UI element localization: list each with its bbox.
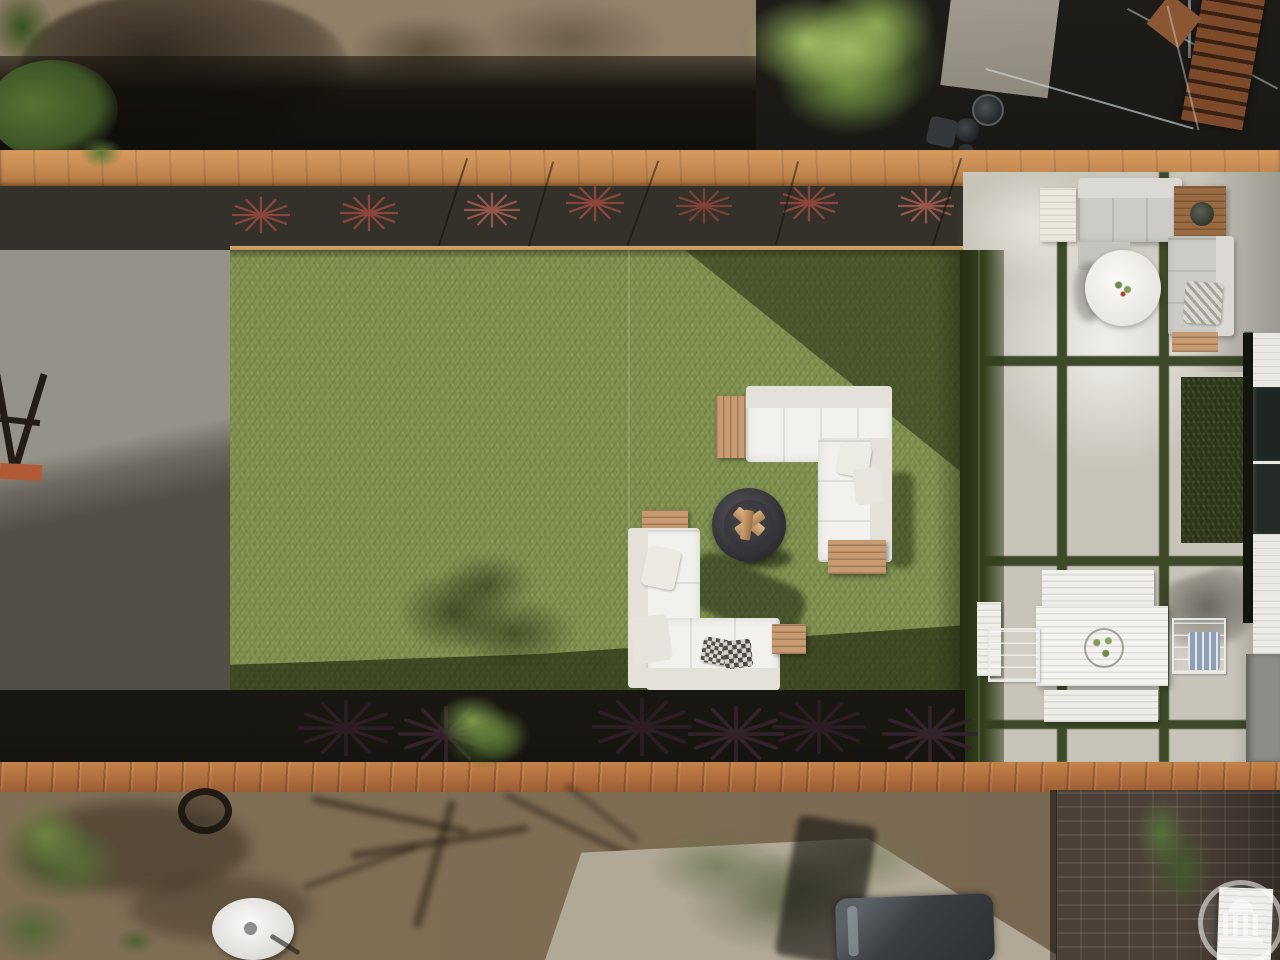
shadowed-spiky-plant xyxy=(298,700,394,756)
dish-feed-arm xyxy=(244,922,257,935)
shadowed-spiky-plant xyxy=(688,706,784,762)
side-fence-shadow-strip xyxy=(960,250,1004,762)
shadowed-spiky-plant xyxy=(772,700,866,754)
round-white-fire-table xyxy=(1085,250,1161,326)
watermark-crest-base xyxy=(1219,938,1263,943)
shadowed-spiky-plant xyxy=(592,698,692,756)
teak-side-table xyxy=(828,540,886,574)
dining-bench-bottom xyxy=(1044,690,1158,722)
orange-base-strip xyxy=(0,463,42,481)
dark-window xyxy=(1253,387,1280,461)
tire-ring xyxy=(178,788,232,834)
white-slat-panel xyxy=(1253,596,1280,654)
back-cushions xyxy=(628,528,648,688)
throw-pillow xyxy=(629,614,673,665)
watermark-crest-bars xyxy=(1223,914,1259,936)
red-cordyline-plant xyxy=(566,184,624,222)
round-planter-pot xyxy=(972,94,1004,126)
fence-greenery-tuft xyxy=(80,138,122,168)
small-tree-canopy xyxy=(424,684,544,776)
back-cushions xyxy=(1078,178,1182,198)
striped-chair-cushion xyxy=(1188,632,1220,670)
back-cushions xyxy=(746,386,892,408)
green-bush-small xyxy=(0,900,74,960)
watermark-logo: S xyxy=(1198,872,1280,960)
fire-pit-bowl xyxy=(712,488,786,562)
leaf-tuft xyxy=(116,928,156,954)
fire-table-center-bowl xyxy=(1108,273,1138,303)
gray-sectional-top xyxy=(1078,178,1182,242)
ladder-leg xyxy=(0,374,18,474)
patterned-pillow xyxy=(723,639,754,670)
wire-chair-right xyxy=(1172,618,1226,674)
white-planter-bench xyxy=(1040,188,1076,242)
patterned-pillow xyxy=(1183,281,1224,326)
red-cordyline-plant xyxy=(232,196,290,234)
back-cushions xyxy=(646,668,780,690)
watermark-circle xyxy=(1198,880,1280,960)
green-bush xyxy=(0,782,136,916)
neighbor-yard-bottom xyxy=(0,792,1280,960)
tree-canopy-highlight xyxy=(790,10,910,90)
aerial-photo: S xyxy=(0,0,1280,960)
car-windshield xyxy=(847,906,859,956)
throw-pillow xyxy=(852,466,884,505)
house-siding xyxy=(1253,333,1280,633)
dark-window xyxy=(1253,464,1280,534)
decor-bowl xyxy=(1190,202,1214,226)
paving-curb-shadow xyxy=(1050,790,1057,960)
teak-side-table xyxy=(716,396,750,458)
white-satellite-dish xyxy=(212,898,294,960)
shadowed-spiky-plant xyxy=(882,706,978,762)
teak-platform xyxy=(1172,332,1218,352)
parked-car xyxy=(835,893,995,960)
wire-chair-left xyxy=(988,628,1040,682)
potted-plant-centerpiece xyxy=(1086,630,1122,666)
watermark-crest-dome xyxy=(1229,899,1253,912)
gray-wall xyxy=(1246,654,1280,762)
white-dining-table xyxy=(1036,606,1168,686)
red-cordyline-plant xyxy=(676,188,732,224)
red-cordyline-plant xyxy=(340,194,398,232)
red-cordyline-plant xyxy=(464,192,520,228)
left-mulch-strip xyxy=(0,186,232,250)
dining-bench-top xyxy=(1042,570,1154,608)
strip-highlight xyxy=(978,250,980,762)
teak-side-table xyxy=(772,624,806,654)
tree-shadow-on-turf xyxy=(378,548,598,690)
